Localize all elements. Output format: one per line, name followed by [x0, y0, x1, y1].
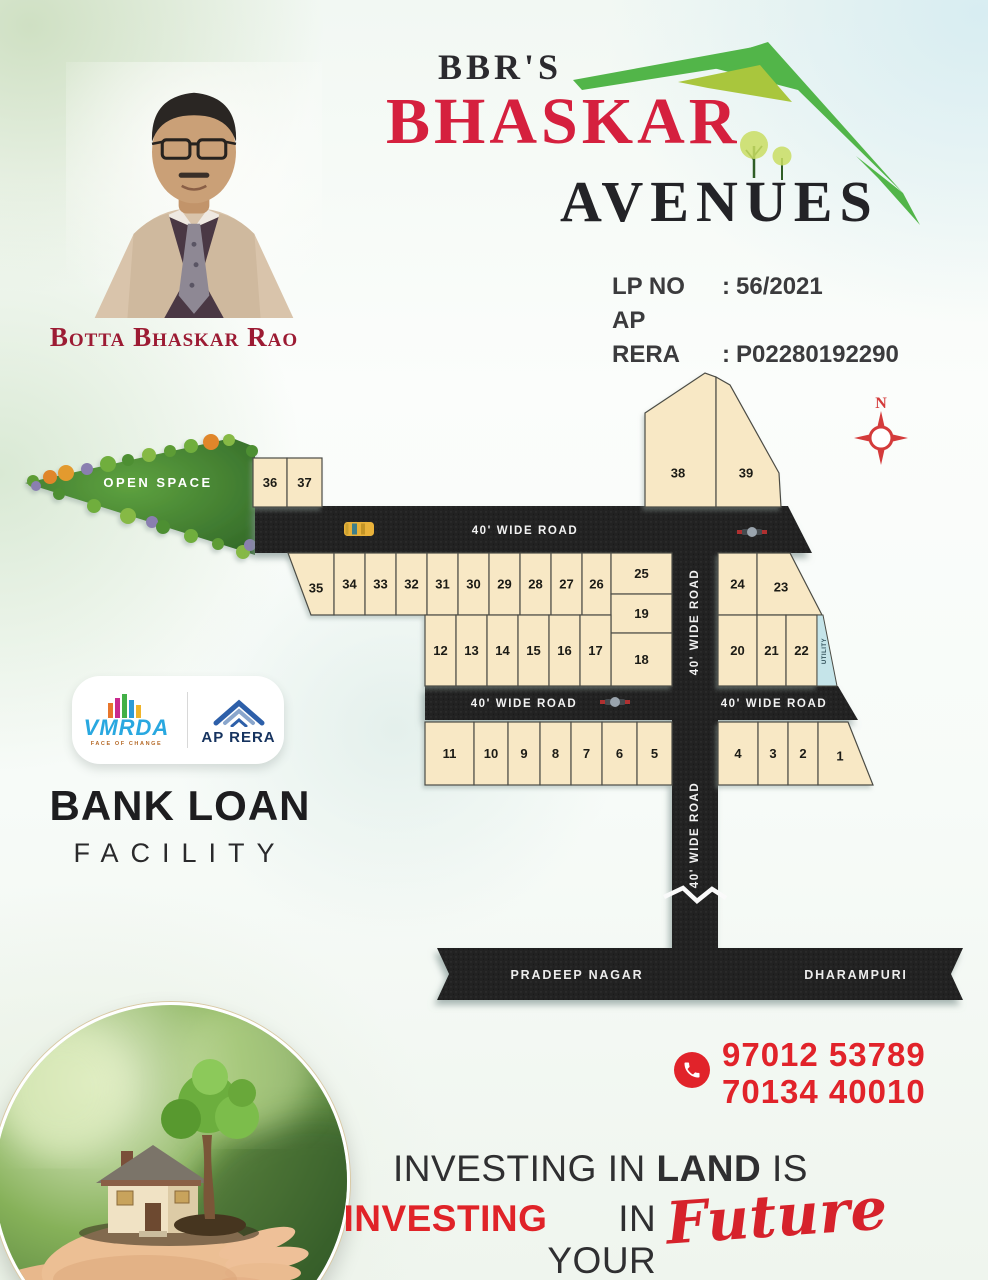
plot-label-22: 22 [794, 643, 808, 658]
plot-label-16: 16 [557, 643, 571, 658]
plot-label-3: 3 [769, 746, 776, 761]
plot-label-19: 19 [634, 606, 648, 621]
bush-icon [164, 445, 176, 457]
road-label-middle-right: 40' WIDE ROAD [721, 698, 828, 710]
plot-label-27: 27 [559, 577, 573, 592]
bush-icon [120, 508, 136, 524]
utility-strip: UTILITY [817, 615, 837, 686]
bush-icon [184, 529, 198, 543]
plot-label-39: 39 [739, 466, 753, 481]
bank-loan-block: BANK LOAN FACILITY [38, 782, 322, 869]
plot-label-9: 9 [520, 746, 527, 761]
bush-icon [122, 454, 134, 466]
plot-label-29: 29 [497, 577, 511, 592]
owner-name: Botta Bhaskar Rao [36, 322, 312, 353]
bush-icon [203, 434, 219, 450]
hand-house-photo [0, 1002, 350, 1280]
bush-icon [43, 470, 57, 484]
ap-rera-logo: AP RERA [196, 695, 282, 746]
plot-label-30: 30 [466, 577, 480, 592]
lp-number-row: LP NO:56/2021 [612, 270, 899, 304]
plot-label-26: 26 [589, 577, 603, 592]
road-label-middle-left: 40' WIDE ROAD [471, 698, 578, 710]
brand-name: Bhaskar [386, 84, 740, 160]
bank-loan-title: BANK LOAN [38, 782, 322, 830]
open-space: OPEN SPACE [25, 434, 258, 559]
plot-label-13: 13 [464, 643, 478, 658]
bush-icon [156, 520, 170, 534]
poster: Botta Bhaskar Rao BBR's Bhaskar Avenues … [0, 0, 988, 1280]
plot-label-20: 20 [730, 643, 744, 658]
plot-label-38: 38 [671, 466, 685, 481]
ap-rera-mountains-icon [210, 695, 268, 727]
plot-label-1: 1 [836, 749, 843, 764]
bush-icon [81, 463, 93, 475]
plot-label-18: 18 [634, 652, 648, 667]
road-label-vertical-upper: 40' WIDE ROAD [689, 569, 701, 676]
plot-23 [757, 553, 822, 615]
bush-icon [246, 445, 258, 457]
open-space-label: OPEN SPACE [103, 475, 212, 490]
plots: 3839363735343332313029282726251918121314… [253, 373, 873, 785]
plot-1 [818, 722, 873, 785]
road-label-vertical-lower: 40' WIDE ROAD [689, 782, 701, 889]
vmrda-tagline: FACE OF CHANGE [91, 741, 163, 747]
utility-label: UTILITY [822, 638, 828, 664]
plot-label-5: 5 [651, 746, 658, 761]
plot-label-31: 31 [435, 577, 449, 592]
vmrda-skyline-icon [107, 694, 147, 718]
road-label-pradeep-nagar: PRADEEP NAGAR [511, 968, 644, 982]
approvals-badge: VMRDA FACE OF CHANGE AP RERA [72, 676, 284, 764]
bush-icon [184, 439, 198, 453]
plot-label-21: 21 [764, 643, 778, 658]
bush-icon [223, 434, 235, 446]
plot-label-17: 17 [588, 643, 602, 658]
plot-label-23: 23 [774, 580, 788, 595]
bush-icon [142, 448, 156, 462]
phone-number-1: 97012 53789 [722, 1036, 926, 1073]
bush-icon [87, 499, 101, 513]
plot-label-6: 6 [616, 746, 623, 761]
bank-loan-subtitle: FACILITY [38, 838, 322, 869]
tagline-line2: INVESTING IN YOURFuture [368, 1198, 888, 1280]
phone-numbers: 97012 53789 70134 40010 [722, 1036, 926, 1110]
bush-icon [31, 481, 41, 491]
plot-label-10: 10 [484, 746, 498, 761]
phone-icon [674, 1052, 710, 1088]
plot-label-11: 11 [443, 746, 457, 761]
plot-label-7: 7 [583, 746, 590, 761]
plot-39 [716, 377, 781, 507]
plot-label-34: 34 [342, 577, 357, 592]
bush-icon [244, 539, 256, 551]
plot-label-2: 2 [799, 746, 806, 761]
plot-label-15: 15 [526, 643, 540, 658]
car-icon [344, 522, 374, 536]
lp-value: 56/2021 [736, 270, 823, 304]
plot-label-8: 8 [552, 746, 559, 761]
plot-label-32: 32 [404, 577, 418, 592]
vmrda-logo: VMRDA FACE OF CHANGE [75, 694, 179, 747]
plot-label-35: 35 [309, 581, 323, 596]
plot-38 [645, 373, 716, 507]
bush-icon [58, 465, 74, 481]
plot-label-14: 14 [495, 643, 510, 658]
vmrda-label: VMRDA [84, 718, 170, 738]
tagline-block: INVESTING IN LAND IS INVESTING IN YOURFu… [368, 1148, 888, 1280]
tagline-script: Future [665, 1188, 889, 1243]
road-label-top: 40' WIDE ROAD [472, 525, 579, 537]
bush-icon [100, 456, 116, 472]
plot-label-28: 28 [528, 577, 542, 592]
plot-label-12: 12 [433, 643, 447, 658]
brand-prefix: BBR's [438, 46, 562, 88]
plot-label-37: 37 [297, 475, 311, 490]
lp-label: LP NO [612, 270, 716, 304]
bush-icon [212, 538, 224, 550]
plot-label-4: 4 [734, 746, 742, 761]
plot-label-24: 24 [730, 577, 745, 592]
ap-rera-label: AP RERA [201, 729, 275, 746]
compass-icon: N [854, 395, 908, 465]
compass-north-label: N [875, 395, 887, 412]
bush-icon [53, 488, 65, 500]
plot-label-33: 33 [373, 577, 387, 592]
owner-photo [66, 58, 322, 322]
phone-number-2: 70134 40010 [722, 1073, 926, 1110]
road-label-dharampuri: DHARAMPURI [804, 968, 907, 982]
plot-label-25: 25 [634, 566, 648, 581]
brand-suffix: Avenues [560, 168, 879, 235]
plot-label-36: 36 [263, 475, 277, 490]
badge-divider [187, 692, 188, 748]
